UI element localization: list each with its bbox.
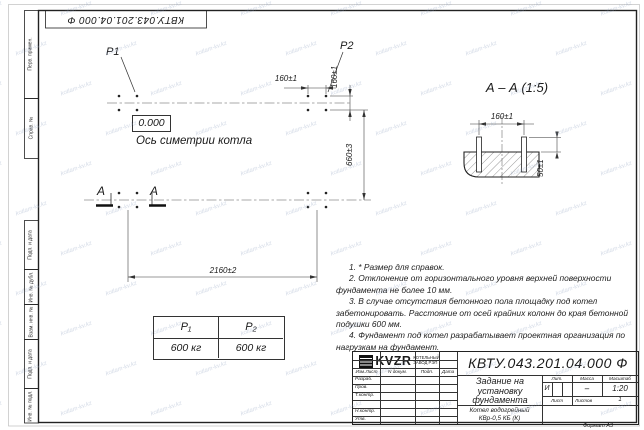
note-2: 2. Отклонение от горизонтального уровня … — [336, 273, 637, 296]
tb-scale-label: Масштаб — [602, 375, 638, 382]
tb-lit-label: Лит. — [542, 375, 572, 382]
tb-sheets-value: 1 — [605, 396, 635, 405]
load-table-header-p2: P₂ — [219, 317, 283, 339]
load-table-value-p1: 600 кг — [154, 338, 219, 358]
dim-660: 660±3 — [345, 144, 355, 166]
section-title: А – А (1:5) — [458, 80, 576, 95]
symmetry-axis-label: Ось симетрии котла — [136, 135, 252, 147]
anchor-bolt — [522, 137, 527, 172]
dim-section-50: 50±1 — [536, 159, 546, 177]
dim-section-160: 160±1 — [479, 112, 525, 121]
title-block: Изм.Лист N докум. Подп. Дата Разраб. Про… — [352, 351, 639, 425]
margin-label-podp-data-2: Подп. и дата — [24, 339, 38, 388]
dim-2160: 2160±2 — [194, 266, 252, 275]
load-table-header-p1: P₁ — [154, 317, 219, 339]
tb-sheet-label: Лист — [542, 396, 572, 405]
tb-role-razrab: Разраб. — [353, 376, 382, 384]
tb-role-utv: Утв. — [353, 416, 382, 424]
tb-doc-number: КВТУ.043.201.04.000 Ф — [458, 352, 638, 375]
note-4: 4. Фундамент под котел разрабатывает про… — [336, 330, 637, 353]
tb-col-n-dokum: N докум. — [380, 368, 415, 375]
tb-col-data: Дата — [439, 368, 457, 375]
load-point-label-p2: P2 — [340, 40, 353, 52]
section-letter-a-left: А — [94, 184, 108, 198]
tb-doc-title: Задание на установку фундамента — [459, 377, 541, 405]
tb-product-name: Котел водогрейный КВр-0,5 КБ (К) — [459, 407, 540, 422]
plan-view — [84, 52, 371, 282]
margin-label-podp-data-1: Подп. и дата — [24, 220, 38, 269]
note-3: 3. В случае отсутствия бетонного пола пл… — [336, 296, 637, 330]
tb-role-prov: Пров. — [353, 384, 382, 392]
tb-scale-value: 1:20 — [602, 382, 638, 396]
company-name: КОТЕЛЬНЫЙ ЗАВОД РЭП — [413, 356, 439, 365]
technical-notes: 1. * Размер для справок. 2. Отклонение о… — [336, 262, 637, 353]
tb-mass-label: Масса — [572, 375, 602, 382]
load-point-label-p1: P1 — [106, 46, 119, 58]
tb-mass-value: – — [572, 382, 602, 396]
section-view — [464, 116, 561, 186]
tb-role-tkontr: Т.контр. — [353, 392, 382, 400]
stamp-doc-number: КВТУ.043.201.04.000 Ф — [67, 14, 184, 25]
tb-col-izm-list: Изм.Лист — [353, 368, 380, 375]
note-1: 1. * Размер для справок. — [336, 262, 637, 273]
drawing-sheet: КВТУ.043.201.04.000 Ф Перв. примен. Спра… — [0, 0, 644, 430]
tb-role-nkontr: Н.контр. — [353, 408, 382, 416]
margin-label-sprav-n: Справ. № — [24, 98, 38, 158]
load-table: P₁ P₂ 600 кг 600 кг — [153, 316, 285, 360]
margin-label-vzam-inv: Взам. инв. № — [24, 304, 38, 339]
concrete-block — [464, 152, 539, 177]
top-stamp: КВТУ.043.201.04.000 Ф — [45, 10, 207, 28]
dim-160-vertical: 160±1 — [330, 66, 340, 88]
tb-lit-value: И — [542, 382, 552, 396]
kvzr-waves-icon — [359, 355, 373, 368]
level-mark: 0.000 — [132, 115, 171, 132]
margin-label-inv-podl: Инв. № подл. — [24, 388, 38, 423]
tb-sheets-label: Листов — [575, 396, 605, 405]
tb-col-podp: Подп. — [415, 368, 439, 375]
format-label: Формат А3 — [553, 423, 643, 429]
margin-label-perv-primen: Перв. примен. — [24, 10, 38, 98]
anchor-bolt — [477, 137, 482, 172]
dim-160-horizontal: 160±1 — [266, 74, 306, 83]
margin-label-inv-dubl: Инв. № дубл. — [24, 269, 38, 304]
load-table-value-p2: 600 кг — [219, 338, 283, 358]
section-letter-a-right: А — [147, 184, 161, 198]
